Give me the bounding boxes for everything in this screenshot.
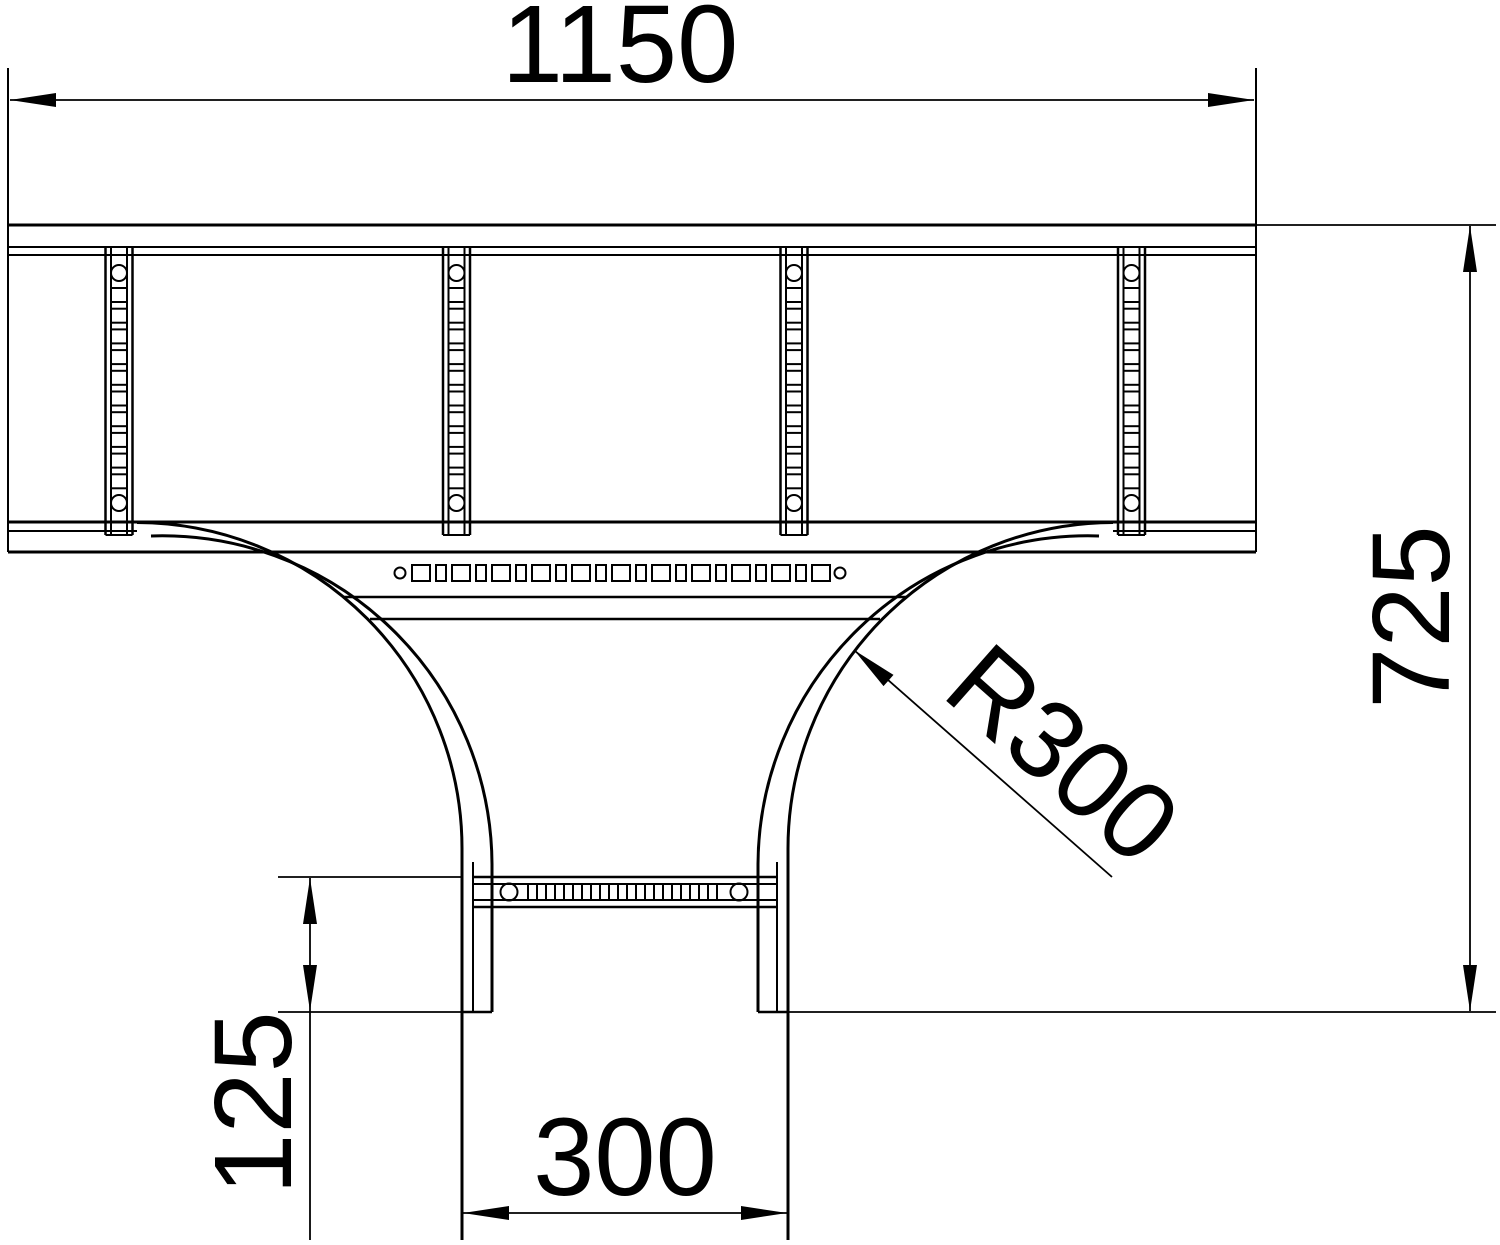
right-fillet-outer-curve xyxy=(788,523,1113,1241)
arrow-left-icon xyxy=(463,1206,509,1220)
arrow-up-icon xyxy=(303,878,317,924)
arrow-right-icon xyxy=(1208,93,1254,107)
dimension-fillet-radius: R300 xyxy=(854,621,1202,887)
branch-rung-slots xyxy=(528,884,717,900)
strip-hole-round-right xyxy=(835,568,846,579)
dimension-top-width: 1150 xyxy=(10,0,1254,107)
drawing-canvas: 1150 725 R300 125 300 xyxy=(0,0,1500,1245)
rung-4 xyxy=(1118,247,1145,535)
dimension-branch-width: 300 xyxy=(463,1096,787,1220)
dimension-label-r300: R300 xyxy=(924,621,1202,887)
branch-rung-hole-right xyxy=(731,884,748,901)
arrow-up-left-icon xyxy=(854,650,894,686)
arrow-down-icon xyxy=(1463,965,1477,1011)
left-fillet-inner-curve xyxy=(151,536,492,1012)
rung-3 xyxy=(781,247,808,535)
web-perforation-strip xyxy=(395,565,846,581)
dimension-label-125: 125 xyxy=(192,1011,315,1195)
arrow-right-icon xyxy=(741,1206,787,1220)
arrow-left-icon xyxy=(10,93,56,107)
dimension-branch-offset: 125 xyxy=(192,877,462,1240)
arrow-up-icon xyxy=(1463,226,1477,272)
arrow-down-icon xyxy=(303,965,317,1011)
ladder-body xyxy=(8,68,1256,552)
technical-drawing: 1150 725 R300 125 300 xyxy=(0,0,1500,1245)
rung-1 xyxy=(106,247,133,535)
dimension-label-300: 300 xyxy=(533,1096,717,1219)
branch-rung-hole-left xyxy=(501,884,518,901)
branch-rung xyxy=(473,877,777,907)
rung-2 xyxy=(443,247,470,535)
dimension-label-725: 725 xyxy=(1350,525,1473,709)
dimension-label-1150: 1150 xyxy=(502,0,739,106)
strip-hole-round-left xyxy=(395,568,406,579)
